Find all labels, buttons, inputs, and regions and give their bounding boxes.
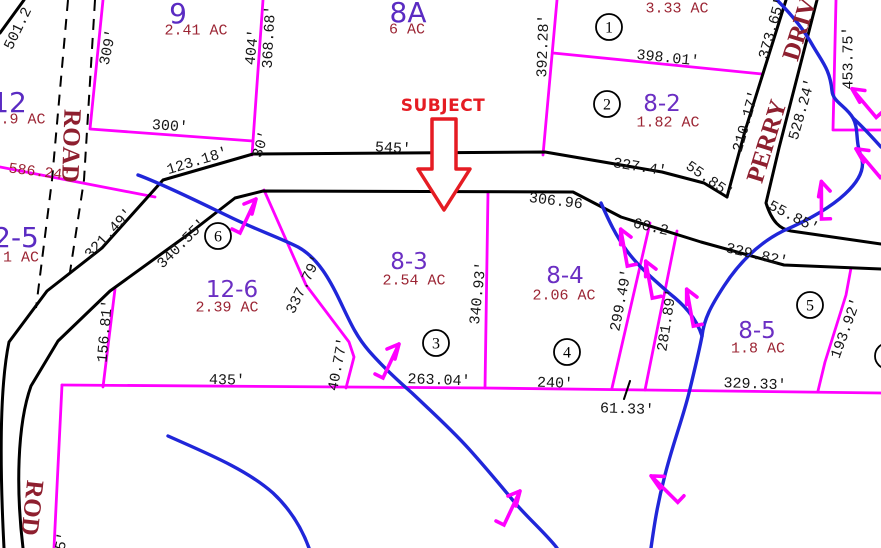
svg-text:2: 2 — [603, 97, 611, 114]
subject-arrow-icon — [418, 119, 470, 210]
dimension-label: 453.75' — [840, 26, 857, 89]
dimension-label: 5' — [53, 531, 73, 548]
dimension-label: 300' — [151, 117, 188, 136]
parcel-number-label: 8-3 — [390, 249, 428, 275]
dimension-label: 263.04' — [407, 371, 471, 390]
parcel-number-label: 8A — [390, 0, 427, 29]
main-road-bottom-edge — [19, 191, 881, 548]
road-name-label: ROAD — [56, 109, 86, 184]
circled-lot-number — [875, 343, 881, 369]
parcel-number-label: 12 — [0, 86, 27, 119]
dimension-label: 321.49' — [82, 205, 137, 263]
stream-southwest — [168, 436, 309, 548]
parcel-number-label: 8-5 — [738, 318, 776, 344]
circled-lot-number: 3 — [423, 330, 449, 356]
dimension-label: 156.81' — [95, 299, 117, 363]
parcel-number-label: 8-4 — [546, 263, 584, 289]
dimension-label: 340.55' — [154, 216, 211, 273]
parcel-number-label: 2-5 — [0, 221, 39, 254]
dimension-label: 337.79' — [283, 253, 326, 317]
circled-lot-number: 4 — [554, 339, 580, 365]
parcel-number-label: 8-2 — [643, 91, 681, 117]
dimension-label: 435' — [209, 372, 245, 390]
streams-layer — [138, 0, 881, 548]
dimension-label: 193.92' — [828, 296, 866, 361]
parcel-number-label: 9 — [169, 0, 187, 30]
svg-text:5: 5 — [806, 298, 814, 315]
dimension-label: 392.28' — [534, 14, 553, 78]
acreage-label: 2.06 AC — [532, 287, 595, 304]
road-name-label: ROD — [15, 479, 48, 537]
labels-layer: 501.2309'404'368.68'300'123.18'30'545'39… — [0, 0, 865, 548]
dimension-label: 329.33' — [723, 375, 787, 394]
dimension-label: 60.2 — [631, 215, 670, 240]
dimension-label: 329.82' — [724, 240, 789, 271]
dimension-label: 61.33' — [600, 400, 655, 419]
circled-lot-number: 2 — [594, 91, 620, 117]
acreage-label: 3.33 AC — [645, 0, 708, 17]
dimension-label: 501.2 — [1, 5, 36, 53]
dimension-label: 327.4' — [612, 155, 668, 180]
stream-east — [651, 0, 863, 548]
dimension-label: 368.68' — [260, 5, 280, 69]
circled-lot-number: 5 — [797, 292, 823, 318]
dimension-label: 545' — [374, 139, 411, 158]
flow-arrow-icon — [651, 468, 685, 508]
circled-lot-number: 1 — [596, 14, 622, 40]
svg-text:1: 1 — [605, 20, 613, 37]
parcel-line-west — [54, 385, 62, 548]
svg-text:6: 6 — [214, 229, 222, 246]
dimension-label: 398.01' — [636, 47, 700, 70]
dimension-label: 240' — [537, 375, 574, 393]
plat-map-canvas: SUBJECT — [0, 0, 881, 548]
plat-map: SUBJECT — [0, 0, 881, 548]
svg-text:3: 3 — [432, 336, 440, 353]
subject-label: SUBJECT — [401, 96, 486, 116]
flow-arrow-icon — [496, 491, 520, 525]
svg-text:4: 4 — [563, 345, 571, 362]
parcel-number-label: 12-6 — [206, 277, 258, 303]
dimension-label: 123.18' — [165, 144, 230, 179]
